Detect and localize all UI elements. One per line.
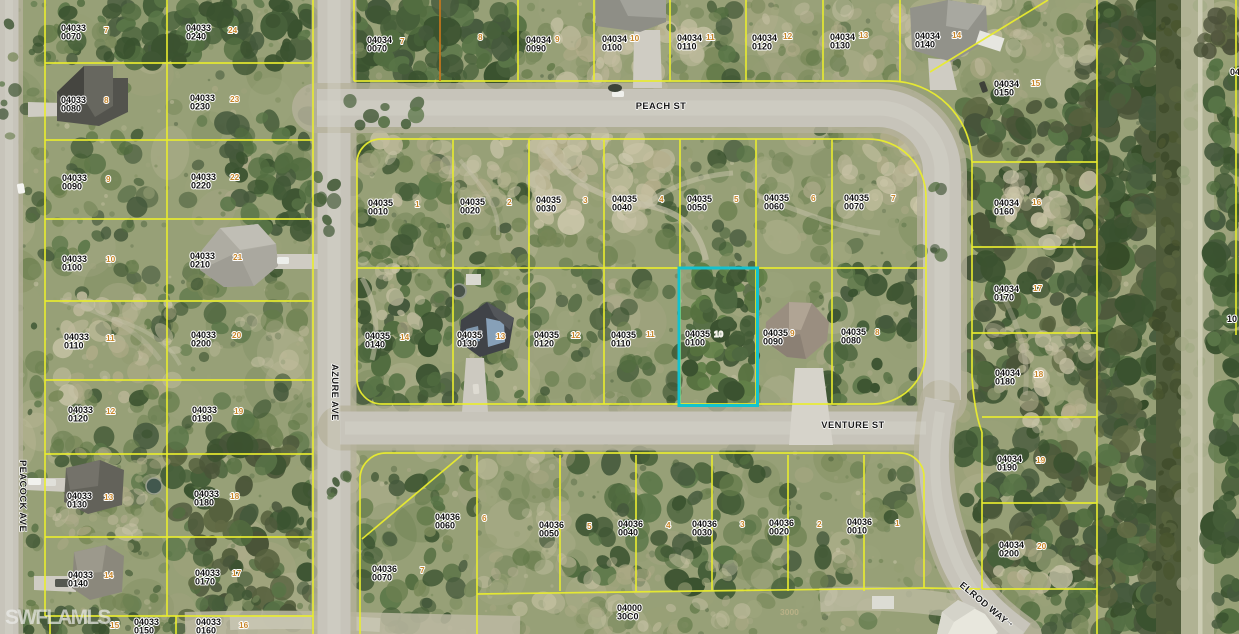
svg-text:0240: 0240: [186, 32, 206, 42]
svg-text:0040: 0040: [618, 528, 638, 538]
svg-text:1: 1: [415, 199, 420, 209]
svg-text:13: 13: [496, 331, 506, 341]
svg-text:5: 5: [587, 521, 592, 531]
svg-text:0080: 0080: [841, 336, 861, 346]
svg-text:0090: 0090: [62, 182, 82, 192]
svg-text:0060: 0060: [435, 521, 455, 531]
svg-text:3: 3: [740, 519, 745, 529]
svg-text:0100: 0100: [685, 338, 705, 348]
svg-text:0110: 0110: [677, 42, 697, 52]
svg-text:2: 2: [507, 197, 512, 207]
svg-text:0120: 0120: [752, 42, 772, 52]
svg-text:0230: 0230: [190, 102, 210, 112]
svg-text:14: 14: [400, 332, 410, 342]
svg-text:12: 12: [106, 406, 116, 416]
svg-text:10: 10: [1227, 314, 1237, 324]
svg-text:0160: 0160: [994, 207, 1014, 217]
svg-text:0170: 0170: [195, 577, 215, 587]
svg-text:2: 2: [817, 519, 822, 529]
svg-text:VENTURE ST: VENTURE ST: [821, 419, 884, 430]
svg-text:9: 9: [790, 328, 795, 338]
svg-text:0070: 0070: [367, 44, 387, 54]
svg-text:0050: 0050: [539, 529, 559, 539]
svg-text:0180: 0180: [995, 377, 1015, 387]
svg-text:24: 24: [228, 25, 238, 35]
svg-text:0070: 0070: [844, 202, 864, 212]
svg-text:20: 20: [232, 330, 242, 340]
svg-text:0130: 0130: [457, 339, 477, 349]
svg-text:04: 04: [1230, 67, 1239, 77]
svg-text:10: 10: [714, 329, 724, 339]
svg-text:0170: 0170: [994, 293, 1014, 303]
svg-text:16: 16: [239, 620, 249, 630]
svg-text:0200: 0200: [999, 549, 1019, 559]
svg-text:0020: 0020: [460, 206, 480, 216]
svg-text:0040: 0040: [612, 203, 632, 213]
svg-text:1: 1: [895, 518, 900, 528]
svg-text:0100: 0100: [602, 43, 622, 53]
svg-text:11: 11: [106, 333, 115, 343]
svg-text:0030: 0030: [536, 204, 556, 214]
svg-text:30C0: 30C0: [617, 612, 639, 622]
svg-text:0080: 0080: [61, 104, 81, 114]
svg-text:13: 13: [859, 30, 869, 40]
svg-text:0210: 0210: [190, 260, 210, 270]
svg-text:0160: 0160: [196, 626, 216, 634]
svg-text:8: 8: [104, 95, 109, 105]
svg-text:0120: 0120: [68, 414, 88, 424]
svg-text:7: 7: [104, 25, 109, 35]
svg-text:7: 7: [400, 36, 405, 46]
svg-text:15: 15: [110, 620, 120, 630]
svg-text:9: 9: [555, 34, 560, 44]
svg-text:PEACOCK AVE: PEACOCK AVE: [18, 460, 29, 532]
svg-text:0070: 0070: [61, 32, 81, 42]
svg-text:0060: 0060: [764, 202, 784, 212]
svg-text:12: 12: [571, 330, 581, 340]
svg-text:0110: 0110: [64, 341, 84, 351]
svg-text:17: 17: [232, 568, 242, 578]
svg-text:0030: 0030: [692, 528, 712, 538]
svg-text:22: 22: [230, 172, 240, 182]
svg-text:16: 16: [1032, 197, 1042, 207]
svg-text:10: 10: [630, 33, 640, 43]
svg-text:5: 5: [734, 194, 739, 204]
svg-text:3000: 3000: [780, 607, 799, 617]
svg-text:0070: 0070: [372, 573, 392, 583]
svg-text:20: 20: [1037, 541, 1047, 551]
svg-text:0190: 0190: [192, 414, 212, 424]
svg-text:0090: 0090: [763, 337, 783, 347]
svg-text:15: 15: [1031, 78, 1041, 88]
svg-text:12: 12: [783, 31, 793, 41]
svg-text:0190: 0190: [997, 463, 1017, 473]
svg-text:0120: 0120: [534, 339, 554, 349]
svg-text:0010: 0010: [368, 207, 388, 217]
svg-text:13: 13: [104, 492, 114, 502]
svg-text:11: 11: [706, 32, 715, 42]
svg-text:14: 14: [952, 30, 962, 40]
svg-text:6: 6: [482, 513, 487, 523]
svg-text:0180: 0180: [194, 498, 214, 508]
svg-text:14: 14: [104, 570, 114, 580]
svg-text:0090: 0090: [526, 44, 546, 54]
svg-text:7: 7: [891, 193, 896, 203]
svg-text:4: 4: [659, 194, 664, 204]
svg-text:0050: 0050: [687, 203, 707, 213]
svg-text:3: 3: [583, 195, 588, 205]
svg-text:0150: 0150: [994, 88, 1014, 98]
svg-text:9: 9: [106, 174, 111, 184]
svg-text:0010: 0010: [847, 526, 867, 536]
svg-text:0200: 0200: [191, 339, 211, 349]
svg-text:6: 6: [811, 193, 816, 203]
svg-text:18: 18: [1034, 369, 1044, 379]
svg-text:18: 18: [230, 491, 240, 501]
svg-text:8: 8: [478, 32, 483, 42]
svg-text:10: 10: [106, 254, 116, 264]
svg-text:21: 21: [233, 252, 243, 262]
svg-text:17: 17: [1033, 283, 1043, 293]
svg-text:SWFLAMLS: SWFLAMLS: [5, 606, 111, 629]
svg-text:0130: 0130: [830, 41, 850, 51]
svg-text:0150: 0150: [134, 626, 154, 634]
svg-text:11: 11: [646, 329, 655, 339]
svg-text:0130: 0130: [67, 500, 87, 510]
svg-text:0220: 0220: [191, 181, 211, 191]
svg-text:0140: 0140: [365, 340, 385, 350]
svg-text:7: 7: [420, 565, 425, 575]
svg-text:23: 23: [230, 94, 240, 104]
svg-text:0140: 0140: [915, 40, 935, 50]
svg-text:0020: 0020: [769, 527, 789, 537]
svg-text:0140: 0140: [68, 579, 88, 589]
svg-text:0110: 0110: [611, 339, 631, 349]
svg-text:PEACH ST: PEACH ST: [636, 100, 687, 111]
svg-text:4: 4: [666, 520, 671, 530]
svg-text:0100: 0100: [62, 263, 82, 273]
svg-text:19: 19: [1036, 455, 1046, 465]
svg-text:8: 8: [875, 327, 880, 337]
svg-text:AZURE AVE: AZURE AVE: [330, 364, 341, 421]
svg-text:19: 19: [234, 406, 244, 416]
